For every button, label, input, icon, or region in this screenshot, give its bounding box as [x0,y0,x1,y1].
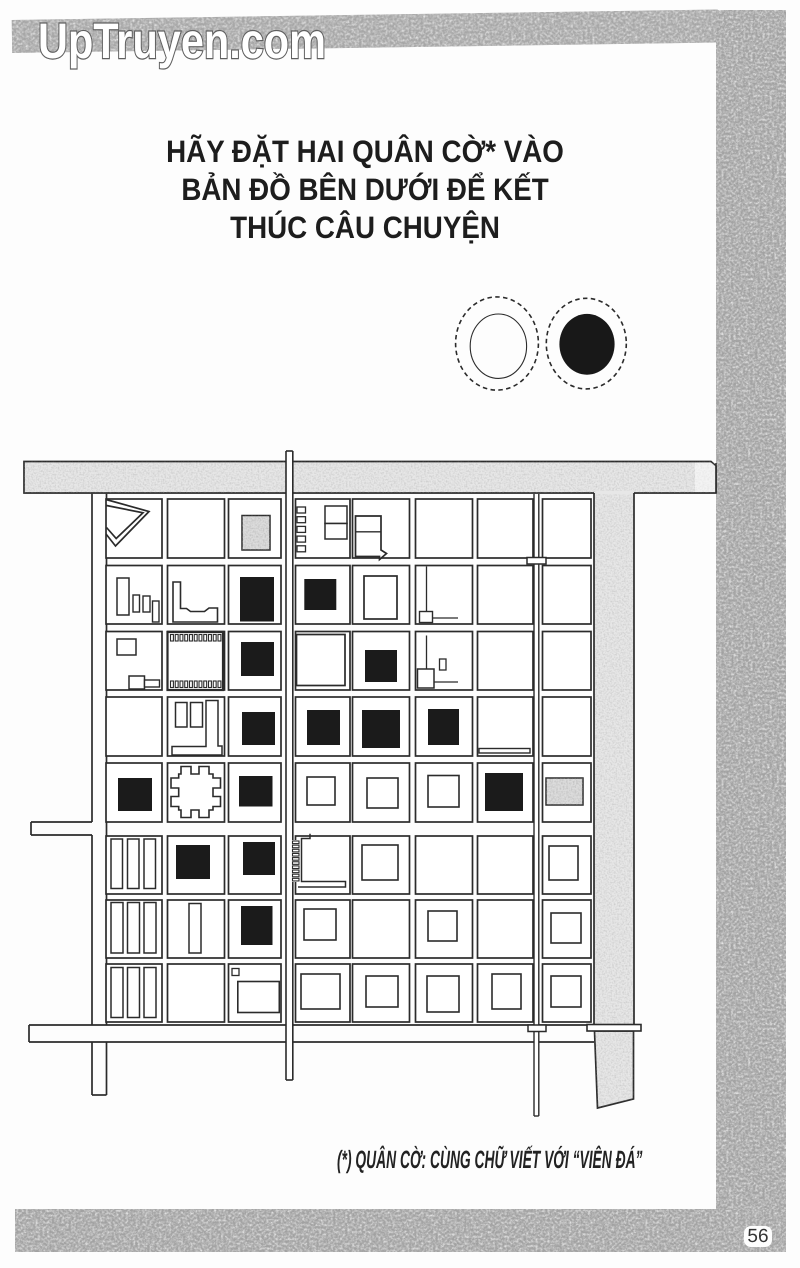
svg-text:UpTruyen.com: UpTruyen.com [38,13,326,69]
